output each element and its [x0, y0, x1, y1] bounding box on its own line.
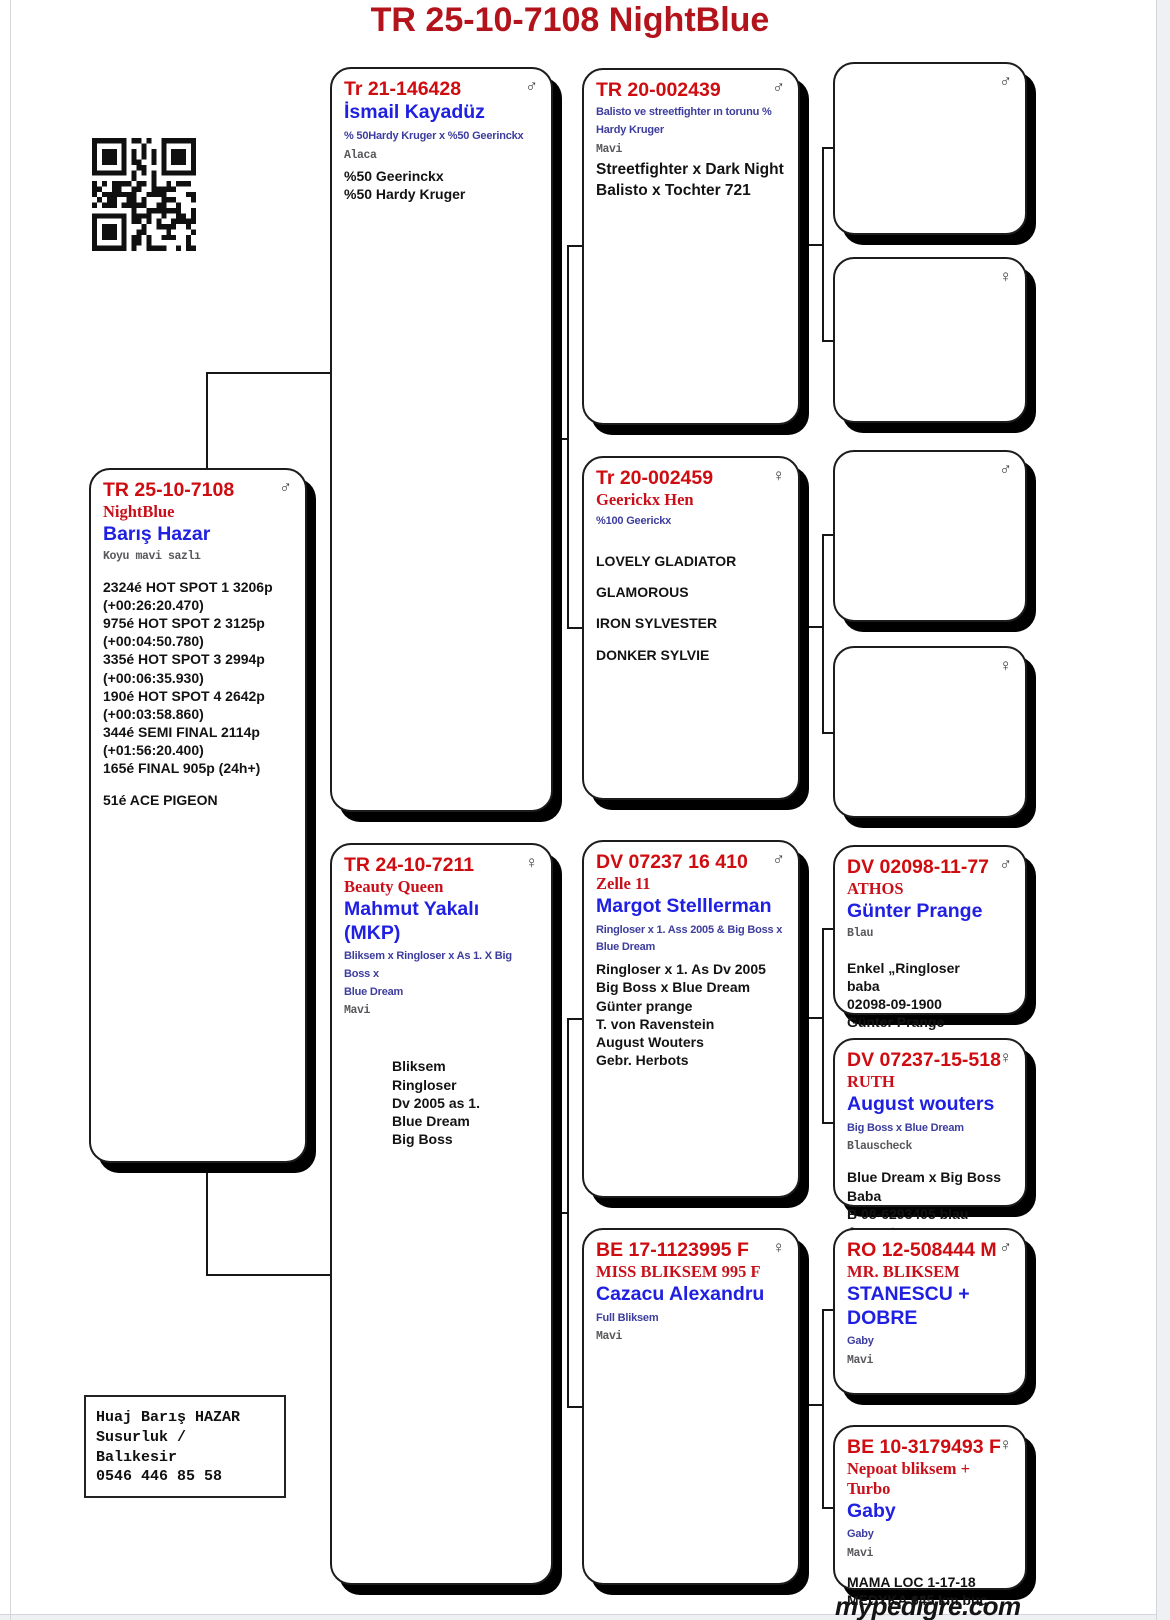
- fancier-name: Günter Prange: [847, 900, 1014, 923]
- breeding-description: Gaby: [847, 1526, 1014, 1544]
- connector-line: [206, 372, 332, 374]
- fancier-name: Gaby: [847, 1500, 1014, 1523]
- ring-number: TR 25-10-7108: [103, 479, 294, 501]
- pedigree-page: TR 25-10-7108 NightBlue ♂ TR 25-10-7108 …: [0, 0, 1170, 1620]
- female-symbol-icon: ♀: [999, 656, 1012, 676]
- scrollbar-track[interactable]: [1157, 0, 1170, 1620]
- breeding-description: Full Bliksem: [596, 1310, 787, 1328]
- pedigree-box-dam-grandsire: ♂ DV 07237 16 410 Zelle 11 Margot Stelll…: [582, 840, 800, 1198]
- info-lines: Enkel „Ringloserbaba02098-09-1900Günter …: [847, 959, 1014, 1032]
- pedigree-box-g4-8: ♀ BE 10-3179493 F Nepoat bliksem + Turbo…: [833, 1425, 1027, 1590]
- ring-number: Tr 20-002459: [596, 467, 787, 489]
- connector-line: [822, 928, 824, 1124]
- female-symbol-icon: ♀: [772, 466, 785, 486]
- male-symbol-icon: ♂: [999, 855, 1012, 875]
- fancier-name: Mahmut Yakalı (MKP): [344, 898, 540, 945]
- info-lines: %50 Geerinckx%50 Hardy Kruger: [344, 167, 540, 203]
- pigeon-name: MISS BLIKSEM 995 F: [596, 1262, 787, 1282]
- pedigree-box-subject: ♂ TR 25-10-7108 NightBlue Barış Hazar Ko…: [89, 468, 307, 1163]
- pigeon-name: ATHOS: [847, 879, 1014, 899]
- female-symbol-icon: ♀: [999, 1048, 1012, 1068]
- info-lines: LOVELY GLADIATORGLAMOROUSIRON SYLVESTERD…: [596, 552, 787, 664]
- ring-number: DV 07237-15-518: [847, 1049, 1014, 1071]
- connector-line: [800, 626, 824, 628]
- color-line: Mavi: [847, 1354, 1014, 1367]
- pigeon-name: Nepoat bliksem + Turbo: [847, 1459, 1014, 1499]
- fancier-name: Cazacu Alexandru: [596, 1283, 787, 1306]
- info-lines: Ringloser x 1. As Dv 2005Big Boss x Blue…: [596, 960, 787, 1069]
- info-lines: BliksemRingloserDv 2005 as 1.Blue DreamB…: [344, 1057, 540, 1148]
- pedigree-box-g4-5: ♂ DV 02098-11-77 ATHOS Günter Prange Bla…: [833, 845, 1027, 1015]
- fancier-name: Margot Stelllerman: [596, 895, 787, 918]
- female-symbol-icon: ♀: [772, 1238, 785, 1258]
- pigeon-name: RUTH: [847, 1072, 1014, 1092]
- breeding-description: Balisto ve streetfighter ın torunu %Hard…: [596, 104, 787, 140]
- male-symbol-icon: ♂: [999, 1238, 1012, 1258]
- pigeon-name: Zelle 11: [596, 874, 787, 894]
- male-symbol-icon: ♂: [999, 72, 1012, 92]
- pigeon-name: Geerickx Hen: [596, 490, 787, 510]
- male-symbol-icon: ♂: [525, 77, 538, 97]
- breeding-description: Ringloser x 1. Ass 2005 & Big Boss xBlue…: [596, 922, 787, 958]
- ring-number: RO 12-508444 M: [847, 1239, 1014, 1261]
- pedigree-box-sire-granddam: ♀ Tr 20-002459 Geerickx Hen %100 Geerick…: [582, 456, 800, 800]
- color-line: Mavi: [596, 1330, 787, 1343]
- pedigree-box-g4-7: ♂ RO 12-508444 M MR. BLIKSEM STANESCU + …: [833, 1228, 1027, 1395]
- male-symbol-icon: ♂: [279, 478, 292, 498]
- page-left-edge: [10, 0, 11, 1620]
- color-line: Mavi: [596, 143, 787, 156]
- color-line: Alaca: [344, 149, 540, 162]
- page-title: TR 25-10-7108 NightBlue: [0, 1, 1140, 40]
- connector-line: [206, 1274, 332, 1276]
- ring-number: BE 17-1123995 F: [596, 1239, 787, 1261]
- female-symbol-icon: ♀: [525, 853, 538, 873]
- male-symbol-icon: ♂: [999, 460, 1012, 480]
- male-symbol-icon: ♂: [772, 850, 785, 870]
- fancier-name: İsmail Kayadüz: [344, 101, 540, 124]
- pigeon-name: MR. BLIKSEM: [847, 1262, 1014, 1282]
- pigeon-name: Beauty Queen: [344, 877, 540, 897]
- pedigree-box-sire: ♂ Tr 21-146428 İsmail Kayadüz % 50Hardy …: [330, 67, 553, 812]
- contact-box: Huaj Barış HAZARSusurluk / Balıkesir0546…: [84, 1395, 286, 1498]
- connector-line: [800, 244, 824, 246]
- ring-number: TR 20-002439: [596, 79, 787, 101]
- ring-number: Tr 21-146428: [344, 78, 540, 100]
- color-line: Koyu mavi sazlı: [103, 550, 294, 563]
- pedigree-box-g4-3-empty: ♂: [833, 450, 1027, 622]
- breeding-description: %100 Geerickx: [596, 513, 787, 531]
- breeding-description: % 50Hardy Kruger x %50 Geerinckx: [344, 128, 540, 146]
- ring-number: DV 02098-11-77: [847, 856, 1014, 878]
- pedigree-box-g4-6: ♀ DV 07237-15-518 RUTH August wouters Bi…: [833, 1038, 1027, 1207]
- female-symbol-icon: ♀: [999, 267, 1012, 287]
- pedigree-box-g4-2-empty: ♀: [833, 257, 1027, 423]
- connector-line: [567, 1018, 569, 1408]
- ring-number: BE 10-3179493 F: [847, 1436, 1014, 1458]
- breeding-description: Bliksem x Ringloser x As 1. X Big Boss x…: [344, 948, 540, 1001]
- color-line: Blauscheck: [847, 1140, 1014, 1153]
- contact-lines: Huaj Barış HAZARSusurluk / Balıkesir0546…: [96, 1408, 274, 1487]
- pedigree-box-g4-4-empty: ♀: [833, 646, 1027, 818]
- pedigree-box-dam-granddam: ♀ BE 17-1123995 F MISS BLIKSEM 995 F Caz…: [582, 1228, 800, 1585]
- color-line: Mavi: [847, 1547, 1014, 1560]
- pedigree-box-sire-grandsire: ♂ TR 20-002439 Balisto ve streetfighter …: [582, 68, 800, 425]
- pedigree-box-g4-1-empty: ♂: [833, 62, 1027, 235]
- info-lines: Streetfighter x Dark NightBalisto x Toch…: [596, 159, 787, 202]
- connector-line: [822, 534, 824, 734]
- female-symbol-icon: ♀: [999, 1435, 1012, 1455]
- mypedigre-logo: mypedigre.com: [835, 1591, 1021, 1620]
- ring-number: DV 07237 16 410: [596, 851, 787, 873]
- connector-line: [800, 1404, 824, 1406]
- qr-code: [92, 138, 196, 251]
- connector-line: [800, 1017, 824, 1019]
- pedigree-box-dam: ♀ TR 24-10-7211 Beauty Queen Mahmut Yaka…: [330, 843, 553, 1585]
- connector-line: [822, 147, 824, 342]
- fancier-name: STANESCU + DOBRE: [847, 1283, 1014, 1330]
- ring-number: TR 24-10-7211: [344, 854, 540, 876]
- fancier-name: August wouters: [847, 1093, 1014, 1116]
- connector-line: [822, 1309, 824, 1509]
- color-line: Blau: [847, 927, 1014, 940]
- connector-line: [206, 372, 208, 468]
- fancier-name: Barış Hazar: [103, 523, 294, 546]
- male-symbol-icon: ♂: [772, 78, 785, 98]
- color-line: Mavi: [344, 1004, 540, 1017]
- race-results: 2324é HOT SPOT 1 3206p(+00:26:20.470)975…: [103, 578, 294, 809]
- breeding-description: Big Boss x Blue Dream: [847, 1120, 1014, 1138]
- connector-line: [567, 245, 569, 629]
- pigeon-name: NightBlue: [103, 502, 294, 522]
- breeding-description: Gaby: [847, 1333, 1014, 1351]
- connector-line: [206, 1163, 208, 1276]
